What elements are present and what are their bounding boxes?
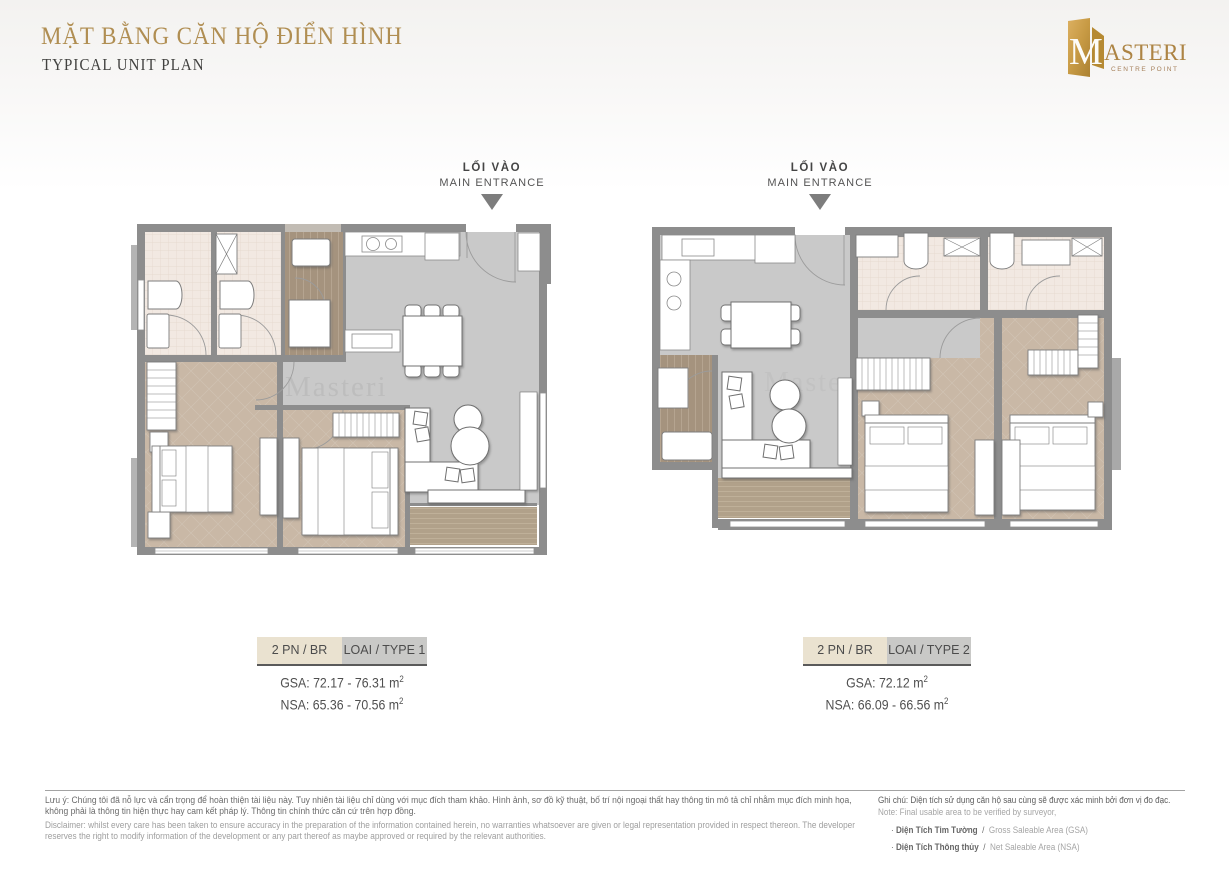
svg-text:ASTERI: ASTERI [1104,40,1187,65]
svg-text:M: M [1069,31,1103,73]
svg-text:CENTRE POINT: CENTRE POINT [1111,66,1179,73]
svg-text:Masteri: Masteri [285,371,388,403]
